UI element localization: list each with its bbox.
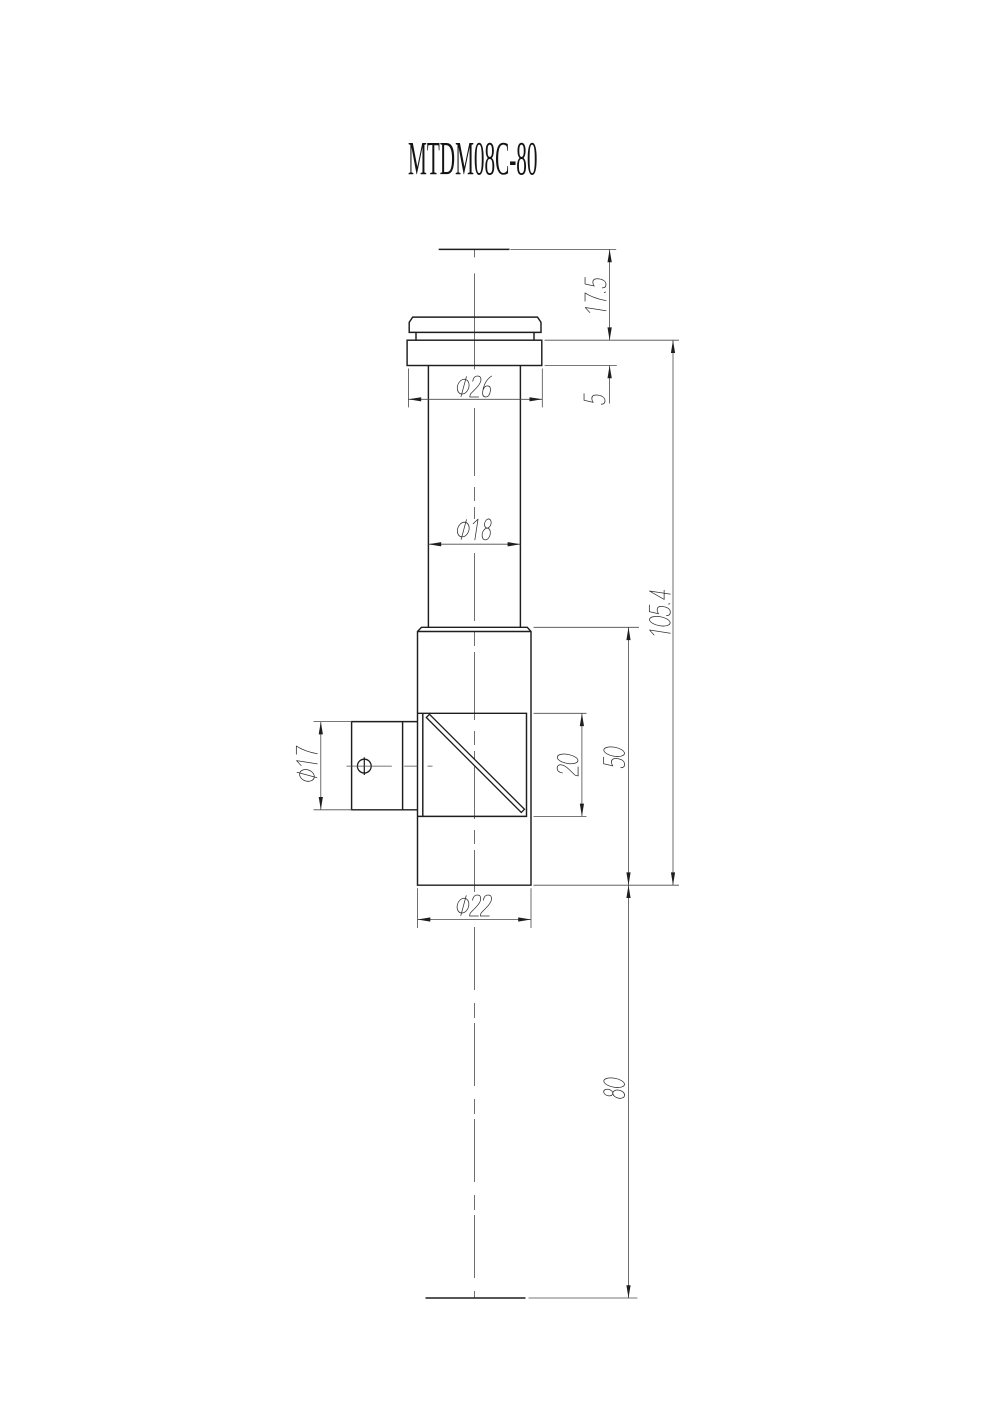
svg-text:MTDM08C-80: MTDM08C-80 xyxy=(408,133,538,186)
